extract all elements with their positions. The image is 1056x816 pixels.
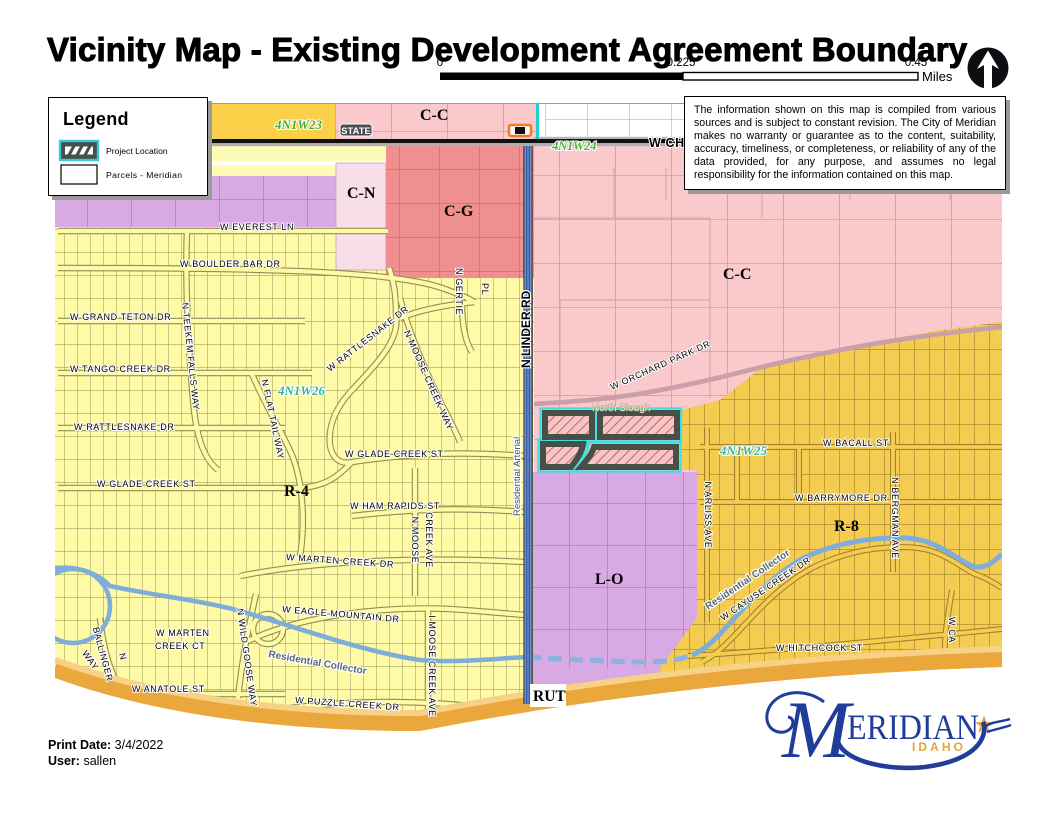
svg-text:W BACALL ST: W BACALL ST: [823, 438, 889, 448]
svg-text:R-4: R-4: [284, 483, 309, 500]
svg-text:4N1W23: 4N1W23: [274, 117, 322, 132]
svg-text:4N1W26: 4N1W26: [277, 383, 325, 398]
svg-text:W MARTEN: W MARTEN: [156, 628, 210, 638]
svg-text:W CA: W CA: [947, 617, 957, 643]
svg-text:Residential Arterial: Residential Arterial: [512, 437, 523, 516]
svg-text:Miles: Miles: [922, 69, 953, 84]
svg-text:R-8: R-8: [834, 518, 859, 535]
svg-text:W GRAND TETON DR: W GRAND TETON DR: [70, 312, 171, 322]
svg-text:C-C: C-C: [723, 266, 751, 283]
svg-text:C-C: C-C: [420, 107, 448, 124]
svg-text:N BERGMAN AVE: N BERGMAN AVE: [890, 477, 900, 559]
svg-text:W BOULDER BAR DR: W BOULDER BAR DR: [180, 259, 281, 269]
svg-text:W RATTLESNAKE DR: W RATTLESNAKE DR: [74, 422, 174, 432]
svg-text:0.225: 0.225: [667, 57, 696, 69]
svg-text:M: M: [781, 684, 855, 775]
svg-text:W ANATOLE ST: W ANATOLE ST: [132, 684, 205, 694]
svg-text:I MOOSE CREEK AVE: I MOOSE CREEK AVE: [427, 615, 437, 717]
svg-text:IDAHO: IDAHO: [912, 740, 966, 754]
svg-text:W GLADE CREEK ST: W GLADE CREEK ST: [345, 449, 444, 459]
svg-text:RUT: RUT: [533, 688, 566, 705]
svg-text:W TANGO CREEK DR: W TANGO CREEK DR: [70, 364, 171, 374]
svg-text:4N1W24: 4N1W24: [551, 138, 597, 153]
svg-text:W GLADE CREEK ST: W GLADE CREEK ST: [97, 479, 196, 489]
svg-text:L-O: L-O: [595, 571, 623, 588]
svg-text:STATE: STATE: [341, 126, 371, 137]
svg-text:W EVEREST LN: W EVEREST LN: [220, 222, 294, 232]
svg-text:N LINDER RD: N LINDER RD: [519, 290, 533, 368]
svg-text:0.45: 0.45: [905, 57, 927, 69]
svg-text:PL: PL: [480, 283, 490, 295]
svg-text:W BARRYMORE DR: W BARRYMORE DR: [795, 493, 888, 503]
svg-text:CREEK AVE: CREEK AVE: [424, 512, 434, 568]
svg-text:North Slough: North Slough: [592, 403, 650, 414]
svg-text:N GERTIE: N GERTIE: [454, 268, 464, 315]
svg-text:C-G: C-G: [444, 203, 474, 220]
svg-text:4N1W25: 4N1W25: [719, 443, 767, 458]
svg-text:CREEK CT: CREEK CT: [155, 641, 205, 651]
svg-text:W HAM RAPIDS ST: W HAM RAPIDS ST: [350, 501, 440, 511]
svg-text:0: 0: [437, 57, 443, 69]
svg-text:W HITCHCOCK ST: W HITCHCOCK ST: [776, 643, 863, 653]
svg-text:N ARLISS AVE: N ARLISS AVE: [703, 481, 713, 548]
svg-text:C-N: C-N: [347, 185, 376, 202]
svg-text:N MOOSE: N MOOSE: [410, 517, 420, 564]
